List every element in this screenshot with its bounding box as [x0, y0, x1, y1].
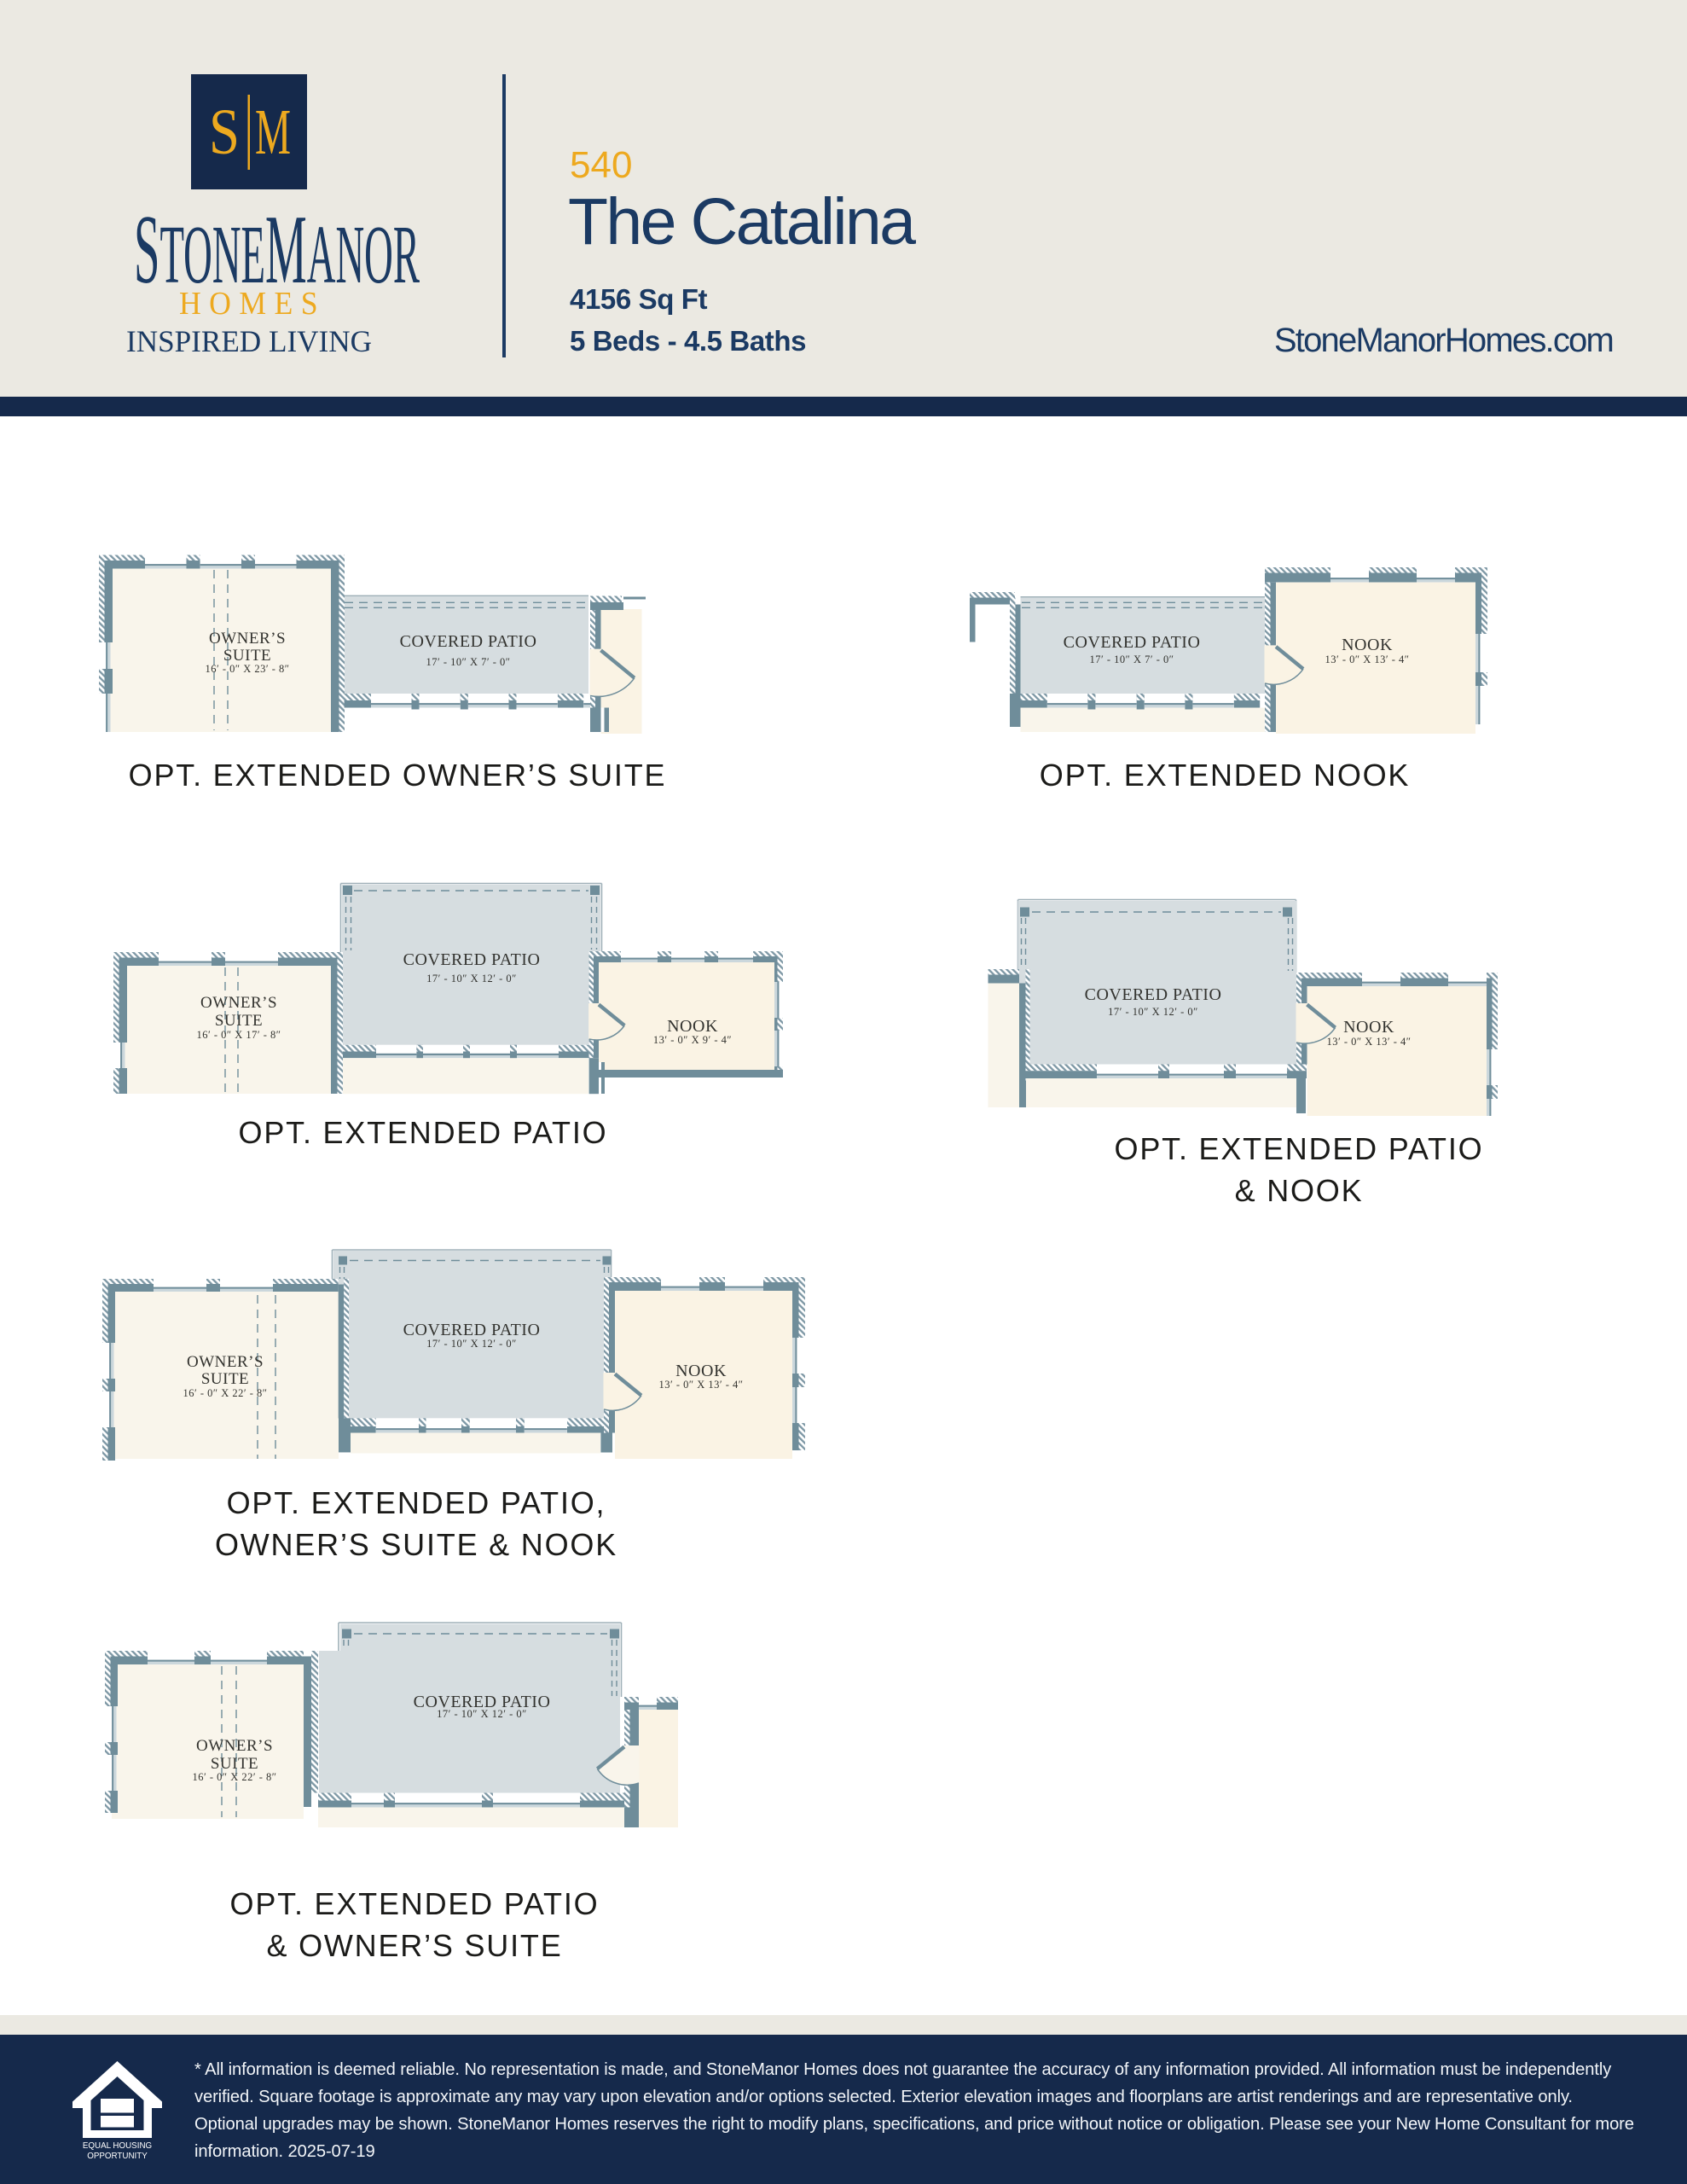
svg-text:OWNER’S: OWNER’S — [196, 1737, 273, 1755]
svg-text:OWNER’S: OWNER’S — [200, 994, 277, 1012]
svg-text:16′ - 0″ X 23′ - 8″: 16′ - 0″ X 23′ - 8″ — [206, 663, 290, 675]
svg-text:17′ - 10″ X 12′ - 0″: 17′ - 10″ X 12′ - 0″ — [1108, 1006, 1198, 1018]
svg-text:COVERED PATIO: COVERED PATIO — [1064, 633, 1201, 652]
svg-text:OPPORTUNITY: OPPORTUNITY — [87, 2152, 148, 2161]
svg-text:13′ - 0″ X 13′ - 4″: 13′ - 0″ X 13′ - 4″ — [1327, 1036, 1412, 1048]
svg-text:13′ - 0″ X 13′ - 4″: 13′ - 0″ X 13′ - 4″ — [659, 1379, 744, 1391]
svg-text:17′ - 10″ X 7′ - 0″: 17′ - 10″ X 7′ - 0″ — [426, 656, 511, 668]
svg-text:COVERED PATIO: COVERED PATIO — [1085, 985, 1222, 1004]
svg-text:OWNER’S: OWNER’S — [209, 630, 286, 648]
svg-text:S: S — [209, 96, 240, 168]
svg-text:16′ - 0″ X 22′ - 8″: 16′ - 0″ X 22′ - 8″ — [183, 1387, 268, 1399]
svg-text:COVERED PATIO: COVERED PATIO — [403, 950, 541, 969]
svg-text:COVERED PATIO: COVERED PATIO — [403, 1321, 541, 1339]
svg-text:COVERED PATIO: COVERED PATIO — [400, 632, 537, 651]
svg-text:13′ - 0″ X 9′ - 4″: 13′ - 0″ X 9′ - 4″ — [653, 1034, 732, 1046]
svg-text:13′ - 0″ X 13′ - 4″: 13′ - 0″ X 13′ - 4″ — [1325, 653, 1410, 665]
svg-text:SUITE: SUITE — [215, 1012, 263, 1030]
svg-text:NOOK: NOOK — [667, 1017, 718, 1036]
svg-text:HOMES: HOMES — [179, 286, 326, 322]
svg-text:16′ - 0″ X 17′ - 8″: 16′ - 0″ X 17′ - 8″ — [197, 1029, 281, 1041]
svg-text:NOOK: NOOK — [1342, 636, 1393, 654]
svg-text:17′ - 10″ X 7′ - 0″: 17′ - 10″ X 7′ - 0″ — [1090, 653, 1174, 665]
svg-text:SUITE: SUITE — [201, 1370, 249, 1388]
svg-text:16′ - 0″ X 22′ - 8″: 16′ - 0″ X 22′ - 8″ — [193, 1771, 277, 1783]
svg-text:17′ - 10″ X 12′ - 0″: 17′ - 10″ X 12′ - 0″ — [426, 1338, 517, 1350]
svg-text:SUITE: SUITE — [223, 647, 271, 665]
svg-text:EQUAL HOUSING: EQUAL HOUSING — [83, 2141, 152, 2151]
svg-text:17′ - 10″ X 12′ - 0″: 17′ - 10″ X 12′ - 0″ — [437, 1708, 527, 1720]
svg-text:NOOK: NOOK — [675, 1362, 727, 1380]
svg-text:M: M — [255, 96, 291, 168]
svg-text:SUITE: SUITE — [211, 1755, 258, 1773]
svg-text:NOOK: NOOK — [1343, 1018, 1394, 1037]
svg-text:17′ - 10″ X 12′ - 0″: 17′ - 10″ X 12′ - 0″ — [426, 973, 517, 985]
svg-text:OWNER’S: OWNER’S — [187, 1353, 264, 1371]
svg-text:INSPIRED LIVING: INSPIRED LIVING — [126, 324, 372, 358]
